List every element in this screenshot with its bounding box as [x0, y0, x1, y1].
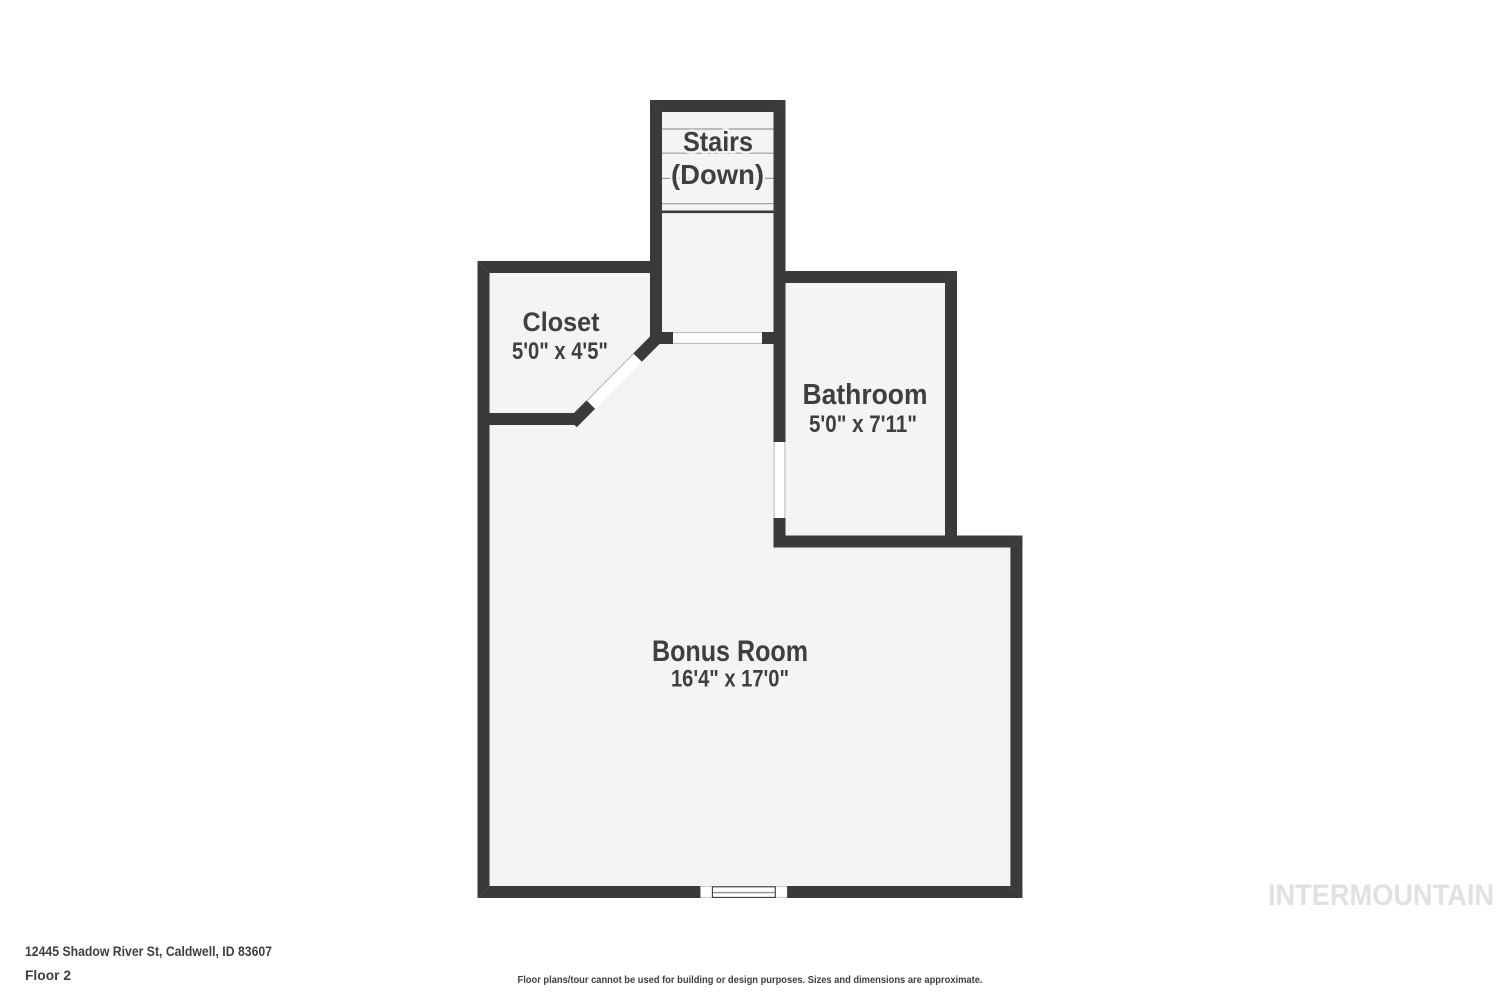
svg-text:12445 Shadow River St, Caldwel: 12445 Shadow River St, Caldwell, ID 8360… — [25, 943, 272, 959]
svg-text:INTERMOUNTAIN: INTERMOUNTAIN — [1268, 879, 1494, 912]
svg-text:Closet: Closet — [523, 307, 600, 337]
svg-text:Floor plans/tour cannot be use: Floor plans/tour cannot be used for buil… — [518, 974, 983, 986]
svg-text:5'0" x 7'11": 5'0" x 7'11" — [809, 411, 917, 438]
svg-text:16'4" x 17'0": 16'4" x 17'0" — [671, 666, 789, 693]
svg-text:Floor 2: Floor 2 — [25, 967, 71, 983]
svg-text:Bathroom: Bathroom — [803, 379, 928, 411]
svg-text:5'0" x 4'5": 5'0" x 4'5" — [512, 338, 608, 365]
svg-text:Stairs: Stairs — [683, 126, 753, 157]
svg-text:Bonus Room: Bonus Room — [652, 635, 808, 668]
svg-text:(Down): (Down) — [671, 159, 764, 190]
